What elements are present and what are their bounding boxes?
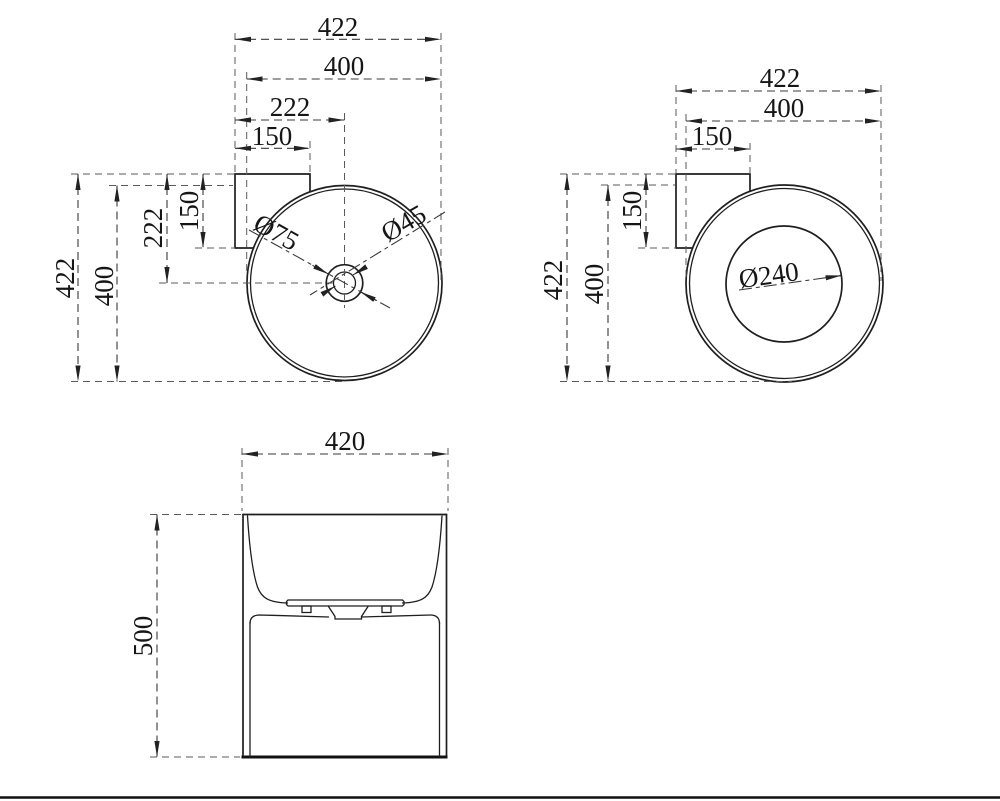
- drain-outer-leader-arrow: [361, 292, 377, 301]
- pedestal-junction-left: [250, 615, 329, 624]
- dim-width-overall: 422: [318, 12, 359, 42]
- dim-center-y: 222: [138, 208, 168, 249]
- dim-deck-depth: 150: [617, 191, 647, 232]
- dim-deck-width: 150: [692, 121, 733, 151]
- dim-width-basin: 400: [764, 93, 805, 123]
- inner-wall-left-curve: [248, 516, 288, 603]
- dim-depth-overall: 422: [538, 260, 568, 301]
- drawing-sheet: 422 400 222 150 422 400 222 150 Ø75 Ø45: [0, 0, 1000, 801]
- dim-depth-overall: 422: [50, 258, 80, 299]
- tap-deck-outline: [676, 174, 750, 248]
- dim-width-overall: 422: [760, 63, 801, 93]
- drain-cover-foot-right: [382, 606, 391, 613]
- basin-front-outline: [242, 515, 448, 758]
- dim-front-height: 500: [128, 616, 158, 657]
- plan-view-right: 422 400 150 422 400 150 Ø240: [538, 63, 883, 382]
- drain-cover-foot-left: [302, 606, 311, 613]
- dim-depth-basin: 400: [579, 264, 609, 305]
- dim-deck-depth: 150: [174, 191, 204, 232]
- drain-cover-plate: [287, 600, 405, 606]
- plan-view-left: 422 400 222 150 422 400 222 150 Ø75 Ø45: [50, 12, 445, 382]
- extension-lines: [71, 33, 441, 382]
- front-view: 420 500: [128, 426, 448, 757]
- technical-drawing-canvas: 422 400 222 150 422 400 222 150 Ø75 Ø45: [0, 0, 1000, 801]
- inner-wall-right-curve: [403, 516, 443, 603]
- dim-center-x: 222: [270, 92, 311, 122]
- label-drain-inner-diameter: Ø45: [376, 199, 431, 248]
- dim-deck-width: 150: [252, 121, 293, 151]
- drain-outer-leader-arrow: [313, 265, 329, 274]
- label-bowl-bottom-diameter: Ø240: [737, 256, 801, 294]
- dim-width-basin: 400: [324, 51, 365, 81]
- dim-front-width: 420: [325, 426, 366, 456]
- bowl-bottom-leader-arrow: [828, 276, 842, 278]
- pedestal-junction-right: [362, 615, 440, 624]
- dim-depth-basin: 400: [89, 266, 119, 307]
